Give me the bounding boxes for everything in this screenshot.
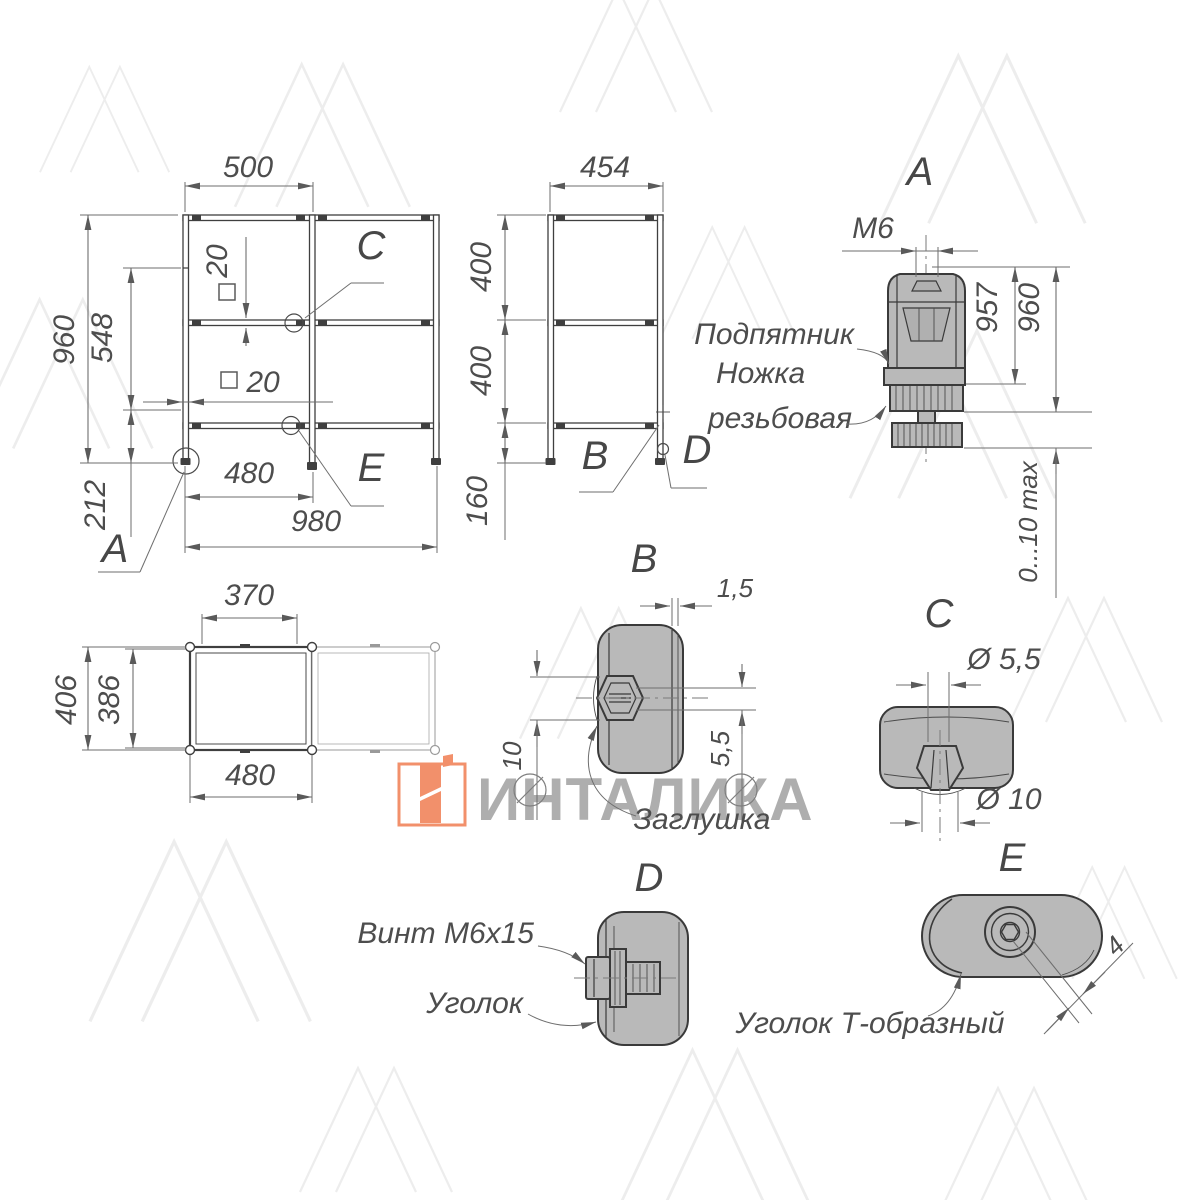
dim-thread: M6 [852,212,894,245]
top-frame [186,643,440,755]
front-view: 500 960 548 212 20 20 480 980 A C E [48,151,441,572]
dim-width-total: 980 [291,505,341,538]
side-detail-labels: B D [579,425,711,492]
detail-c: C Ø 5,5 Ø 10 [880,592,1042,845]
detail-d-title: D [635,856,664,900]
detail-a-callouts: Подпятник Ножка резьбовая [694,318,889,435]
square-tube-symbol [221,372,237,388]
dim-width-top: 500 [223,151,273,184]
dim-width-bay: 480 [224,457,274,490]
foot-part [884,274,965,447]
screw-bracket-part [574,912,688,1045]
dim-hex-size: 4 [1099,930,1130,961]
dim-height-total: 960 [48,315,81,365]
dim-957: 957 [971,282,1004,333]
detail-d-callouts: Винт М6х15 Уголок [357,917,596,1026]
front-detail-labels: A C E [98,224,387,572]
side-dimensions: 454 400 400 160 [461,151,663,540]
dim-inner-width: 370 [224,579,274,612]
dim-slot-height: 5,5 [705,730,735,767]
callout-t-bracket: Уголок Т-образный [735,1007,1005,1040]
side-frame [546,215,671,465]
callout-leg-line1: Ножка [716,357,805,390]
detail-b-title: B [631,537,658,581]
dim-lower: 400 [465,346,498,396]
dim-depth-inner: 386 [93,675,126,725]
technical-drawing-canvas: ИНТАЛИКА [0,0,1200,1200]
square-tube-symbol [219,284,235,300]
dim-wall-thickness: 1,5 [717,573,754,603]
detail-e-title: E [999,836,1027,880]
detail-c-title: C [925,592,955,636]
detail-d: D Винт М6х15 Уголок [357,856,688,1045]
label-detail-c: C [357,224,387,268]
dim-depth: 454 [580,151,630,184]
dim-depth-outer: 406 [50,675,83,725]
front-dimensions: 500 960 548 212 20 20 480 980 [48,151,437,553]
brand-logo-icon [399,754,465,825]
label-detail-e: E [358,446,386,490]
callout-foot-pad: Подпятник [694,318,856,351]
t-bracket-part [922,895,1102,977]
dim-height-mid: 548 [86,313,119,363]
detail-e: E 4 Уголок Т-образный [735,836,1133,1040]
dim-upper: 400 [465,242,498,292]
dim-tube-vertical: 20 [201,244,234,279]
dim-clip-diameter: Ø 10 [975,783,1041,816]
side-view: 454 400 400 160 B D [461,151,711,540]
label-detail-a: A [100,527,129,571]
dim-height-bottom: 212 [79,480,112,531]
dim-hole-diameter: Ø 5,5 [966,643,1041,676]
drawing-page: ИНТАЛИКА [0,0,1200,1200]
dim-tube-horizontal: 20 [245,366,280,399]
dim-adjust-range: 0...10 max [1013,460,1043,582]
dim-legs: 160 [461,476,494,526]
plug-part [594,625,684,773]
dim-plug-height: 10 [497,741,527,770]
detail-a-title: A [905,150,934,194]
top-view: 370 406 386 480 [50,579,440,803]
detail-a-dimensions: M6 957 960 0...10 max [842,212,1092,598]
clip-part [880,707,1013,795]
label-detail-b: B [582,434,609,478]
front-right-foot [431,458,441,465]
callout-screw: Винт М6х15 [357,917,534,950]
dim-bay-width: 480 [225,759,275,792]
callout-bracket: Уголок [425,987,525,1020]
callout-plug: Заглушка [634,803,771,836]
dim-960: 960 [1013,283,1046,333]
front-mid-foot [307,462,317,470]
knurled-nut [892,423,962,447]
callout-leg-line2: резьбовая [707,402,852,435]
front-left-foot [181,458,191,465]
